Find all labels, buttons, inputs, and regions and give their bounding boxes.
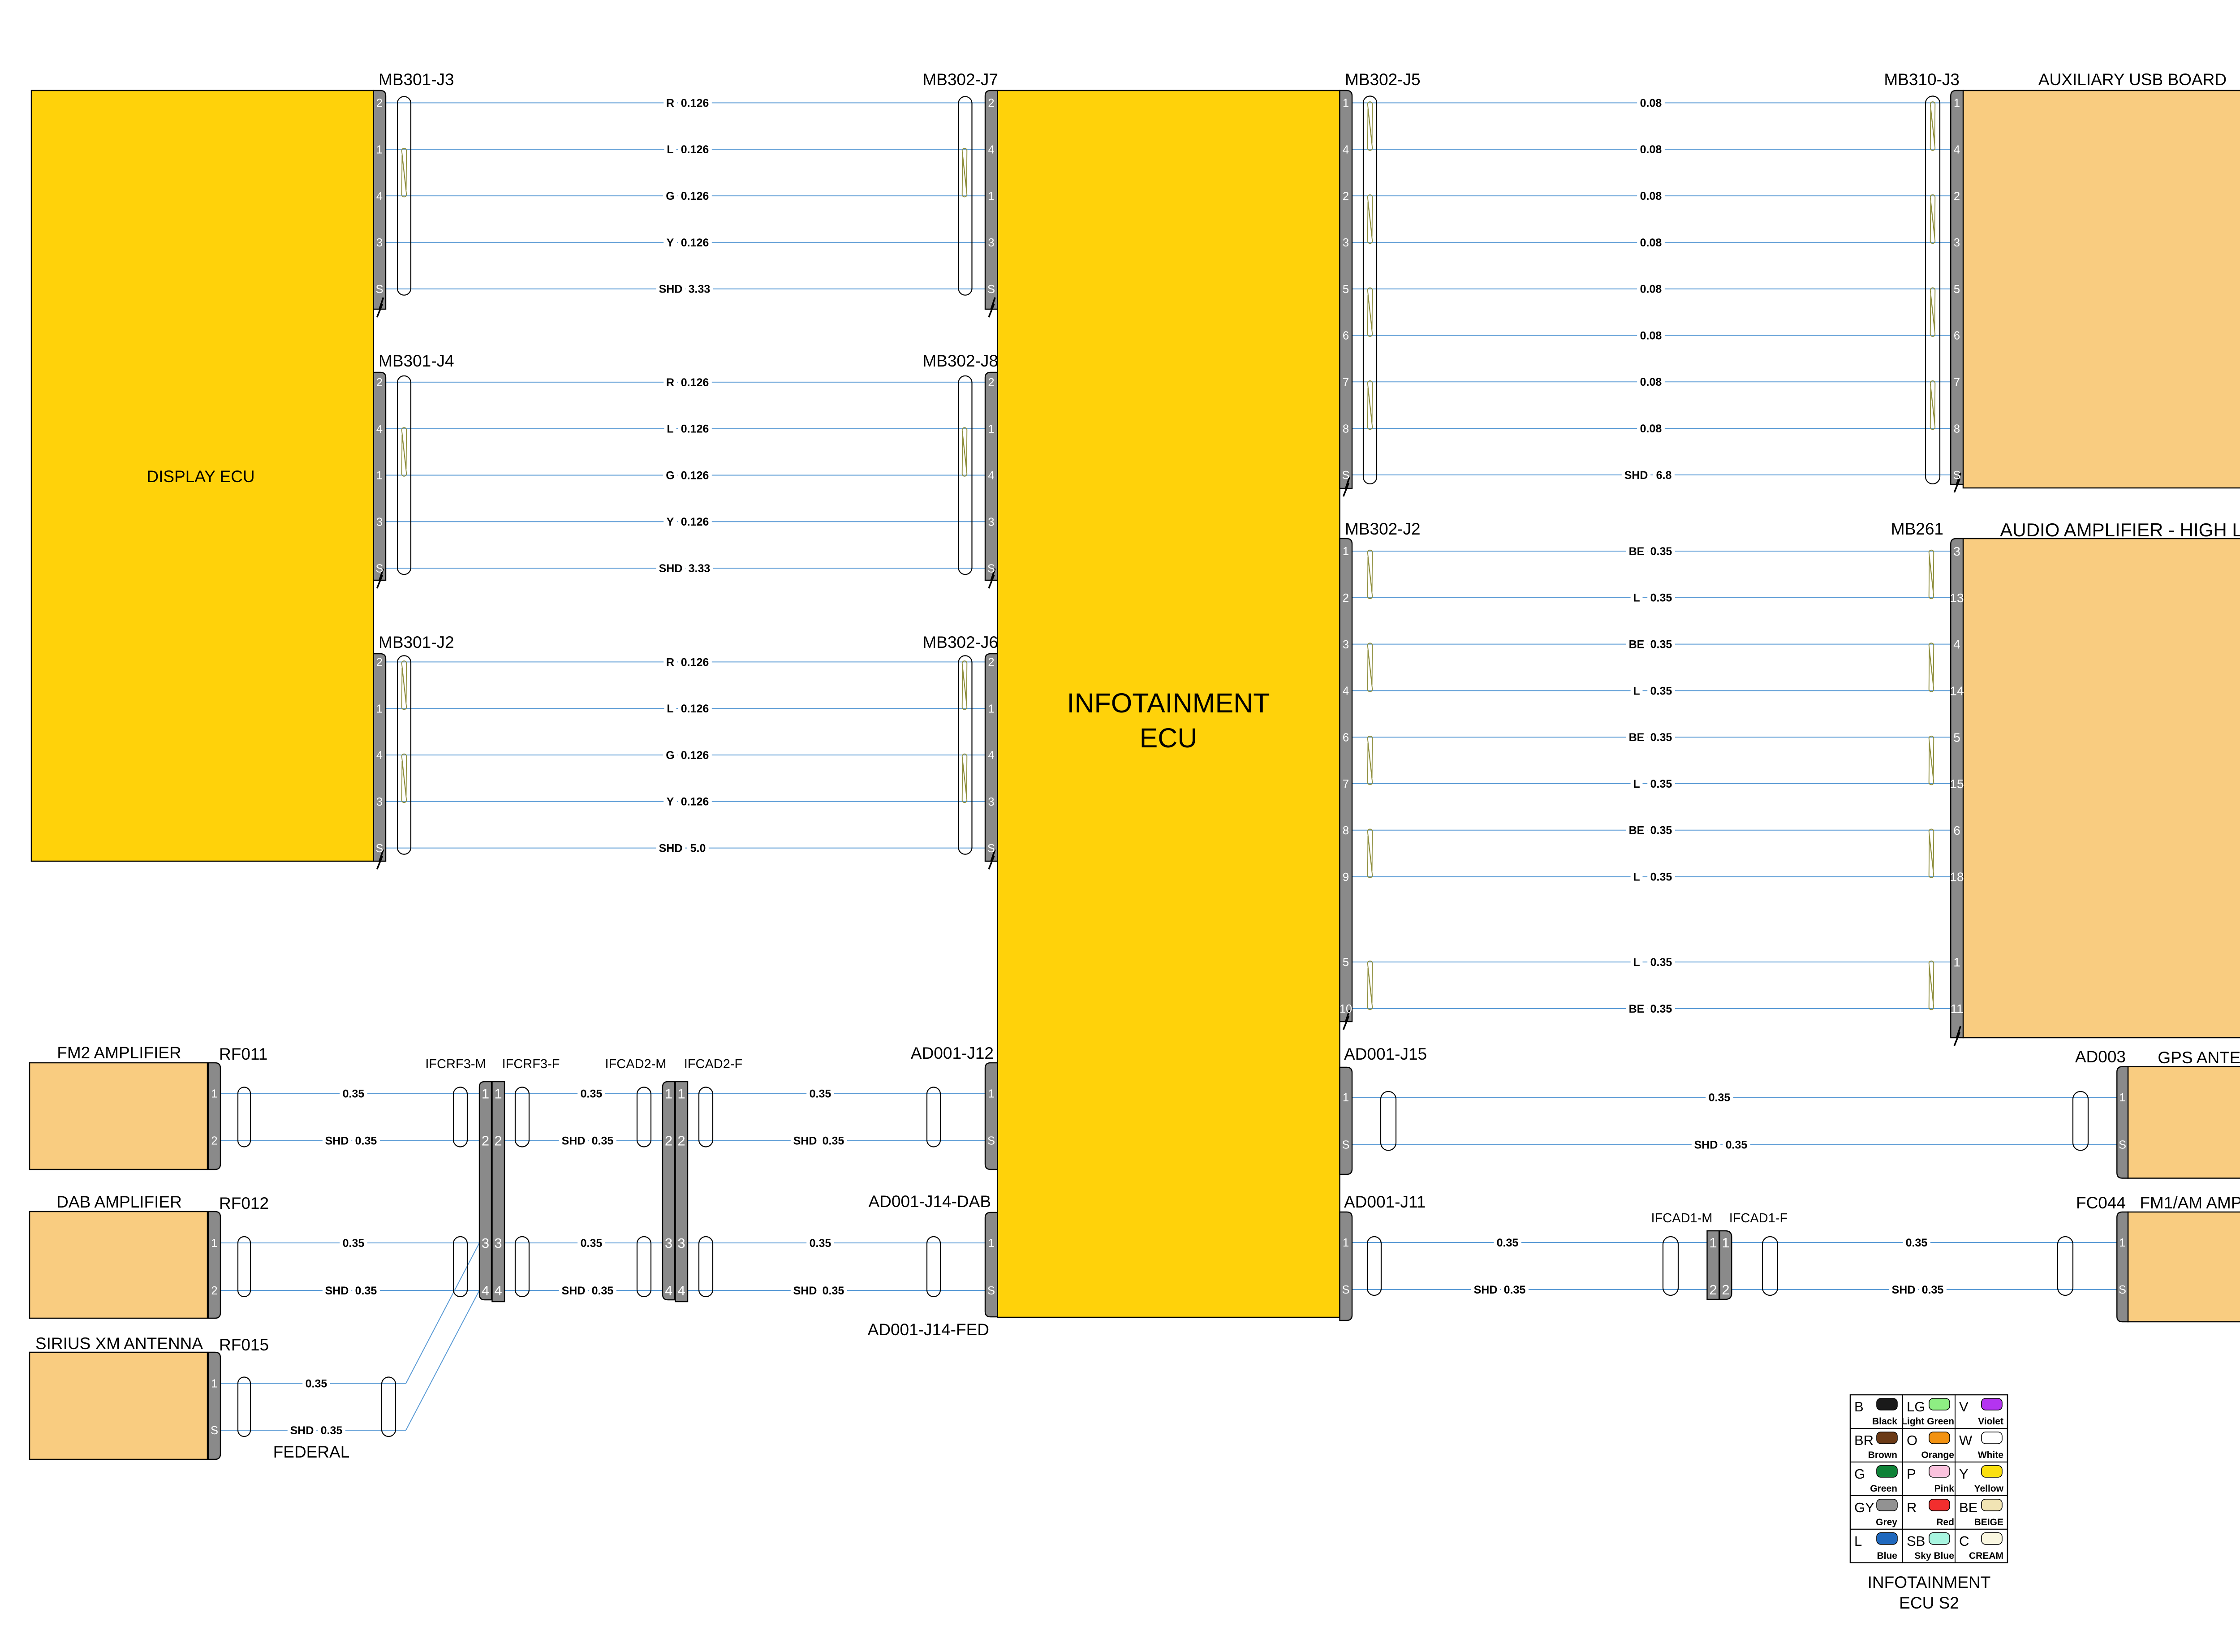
svg-text:10: 10 [1340, 1003, 1352, 1015]
svg-text:BE: BE [1629, 824, 1645, 837]
svg-text:L: L [667, 703, 673, 715]
svg-text:SIRIUS XM ANTENNA: SIRIUS XM ANTENNA [35, 1334, 203, 1353]
svg-text:0.35: 0.35 [1650, 731, 1672, 744]
svg-text:0.35: 0.35 [592, 1285, 614, 1297]
svg-text:SHD: SHD [659, 283, 683, 296]
svg-text:4: 4 [988, 144, 994, 156]
svg-text:S: S [1342, 1139, 1349, 1152]
svg-text:0.126: 0.126 [681, 796, 709, 808]
svg-text:1: 1 [1343, 1091, 1349, 1104]
svg-text:5: 5 [1953, 730, 1960, 744]
svg-text:0.35: 0.35 [581, 1237, 603, 1250]
svg-text:BR: BR [1854, 1432, 1874, 1448]
svg-text:0.35: 0.35 [823, 1285, 844, 1297]
svg-text:2: 2 [376, 97, 383, 110]
svg-text:SHD: SHD [1892, 1284, 1916, 1296]
svg-text:2: 2 [1722, 1282, 1729, 1298]
svg-text:0.35: 0.35 [343, 1087, 365, 1100]
svg-text:2: 2 [494, 1133, 502, 1149]
svg-text:0.126: 0.126 [681, 237, 709, 249]
svg-text:FEDERAL: FEDERAL [273, 1443, 350, 1461]
svg-text:SHD: SHD [1694, 1139, 1718, 1151]
svg-text:S: S [987, 842, 995, 855]
svg-text:Grey: Grey [1876, 1517, 1897, 1527]
svg-text:3: 3 [1953, 544, 1960, 558]
svg-text:GY: GY [1854, 1500, 1874, 1515]
svg-text:1: 1 [2119, 1091, 2125, 1104]
svg-text:W: W [1959, 1432, 1973, 1448]
svg-text:AD001-J11: AD001-J11 [1344, 1193, 1426, 1211]
svg-text:CREAM: CREAM [1969, 1551, 2003, 1561]
svg-text:0.08: 0.08 [1640, 376, 1662, 388]
svg-text:S: S [211, 1424, 218, 1437]
svg-text:Blue: Blue [1877, 1551, 1897, 1561]
svg-text:1: 1 [2119, 1237, 2125, 1249]
svg-text:0.08: 0.08 [1640, 237, 1662, 249]
svg-text:1: 1 [376, 703, 383, 715]
svg-text:0.35: 0.35 [1650, 1003, 1672, 1015]
svg-text:6: 6 [1343, 731, 1349, 744]
svg-text:Orange: Orange [1921, 1450, 1954, 1460]
svg-text:0.126: 0.126 [681, 190, 709, 203]
svg-text:5: 5 [1343, 283, 1349, 296]
svg-text:7: 7 [1343, 376, 1349, 389]
svg-text:3: 3 [1954, 237, 1960, 249]
svg-text:MB301-J2: MB301-J2 [379, 633, 454, 651]
svg-text:0.126: 0.126 [681, 516, 709, 528]
svg-text:0.35: 0.35 [1504, 1284, 1526, 1296]
svg-text:0.08: 0.08 [1640, 97, 1662, 109]
svg-text:SHD: SHD [659, 562, 683, 575]
svg-text:8: 8 [1343, 824, 1349, 837]
svg-text:MB302-J5: MB302-J5 [1345, 70, 1421, 89]
svg-text:S: S [1953, 469, 1960, 482]
svg-text:4: 4 [988, 749, 994, 762]
svg-text:0.35: 0.35 [1906, 1237, 1928, 1249]
svg-text:6: 6 [1953, 824, 1960, 837]
svg-text:0.35: 0.35 [1650, 638, 1672, 651]
svg-text:Violet: Violet [1978, 1416, 2003, 1427]
svg-text:0.35: 0.35 [823, 1134, 844, 1147]
svg-text:AD001-J14-DAB: AD001-J14-DAB [868, 1192, 991, 1211]
svg-text:O: O [1907, 1432, 1917, 1448]
svg-text:IFCAD2-M: IFCAD2-M [605, 1057, 667, 1071]
svg-text:4: 4 [1343, 144, 1349, 156]
svg-text:RF015: RF015 [219, 1336, 269, 1354]
svg-text:0.35: 0.35 [1922, 1284, 1944, 1296]
svg-text:3: 3 [1343, 237, 1349, 249]
svg-text:MB261: MB261 [1891, 520, 1943, 538]
svg-text:C: C [1959, 1533, 1969, 1549]
svg-text:2: 2 [665, 1133, 672, 1149]
svg-text:SHD: SHD [793, 1134, 817, 1147]
svg-text:0.126: 0.126 [681, 376, 709, 389]
svg-text:FM2 AMPLIFIER: FM2 AMPLIFIER [57, 1044, 181, 1062]
svg-text:BE: BE [1629, 731, 1645, 744]
svg-text:1: 1 [211, 1378, 217, 1390]
svg-text:Brown: Brown [1868, 1450, 1897, 1460]
svg-text:SHD: SHD [659, 842, 683, 855]
svg-text:0.35: 0.35 [355, 1285, 377, 1297]
svg-text:3: 3 [677, 1235, 685, 1251]
svg-text:0.35: 0.35 [810, 1087, 831, 1100]
svg-text:4: 4 [1343, 685, 1349, 698]
svg-text:0.126: 0.126 [681, 749, 709, 762]
svg-text:SHD: SHD [793, 1285, 817, 1297]
svg-text:1: 1 [1343, 1237, 1349, 1249]
svg-text:0.35: 0.35 [1650, 685, 1672, 697]
svg-text:13: 13 [1950, 591, 1964, 605]
svg-text:G: G [666, 469, 674, 482]
svg-text:MB302-J7: MB302-J7 [922, 70, 998, 89]
svg-text:IFCRF3-M: IFCRF3-M [425, 1057, 486, 1071]
svg-text:AUDIO AMPLIFIER - HIGH LINE: AUDIO AMPLIFIER - HIGH LINE [2000, 519, 2240, 540]
svg-text:9: 9 [1343, 871, 1349, 884]
svg-text:S: S [2119, 1139, 2126, 1152]
svg-text:3: 3 [482, 1235, 489, 1251]
svg-text:2: 2 [988, 656, 994, 669]
svg-text:AD001-J12: AD001-J12 [911, 1044, 994, 1062]
svg-text:0.126: 0.126 [681, 469, 709, 482]
svg-text:Red: Red [1936, 1517, 1954, 1527]
svg-text:SHD: SHD [325, 1285, 349, 1297]
svg-text:1: 1 [988, 1088, 994, 1100]
svg-text:2: 2 [1343, 190, 1349, 203]
svg-text:4: 4 [1953, 638, 1960, 651]
svg-text:2: 2 [211, 1135, 217, 1147]
svg-text:3: 3 [494, 1235, 502, 1251]
svg-text:2: 2 [211, 1285, 217, 1297]
svg-text:Y: Y [1959, 1466, 1969, 1482]
svg-text:S: S [987, 1285, 995, 1297]
svg-text:4: 4 [376, 190, 383, 203]
svg-text:1: 1 [1709, 1235, 1717, 1251]
svg-text:MB302-J6: MB302-J6 [922, 633, 998, 651]
svg-text:1: 1 [494, 1086, 502, 1102]
svg-text:11: 11 [1950, 1002, 1963, 1016]
svg-text:0.35: 0.35 [306, 1377, 327, 1390]
svg-text:6: 6 [1343, 330, 1349, 342]
svg-text:2: 2 [376, 656, 383, 669]
svg-text:L: L [667, 423, 673, 436]
svg-text:MB310-J3: MB310-J3 [1884, 70, 1960, 89]
svg-text:1: 1 [1343, 545, 1349, 558]
svg-text:0.08: 0.08 [1640, 283, 1662, 296]
svg-text:IFCAD1-F: IFCAD1-F [1729, 1211, 1788, 1225]
svg-text:BE: BE [1959, 1500, 1977, 1515]
svg-text:3: 3 [988, 516, 994, 529]
svg-text:0.08: 0.08 [1640, 190, 1662, 203]
svg-text:SHD: SHD [1624, 469, 1648, 482]
svg-text:ECU S2: ECU S2 [1899, 1594, 1959, 1612]
svg-text:2: 2 [376, 376, 383, 389]
svg-text:SHD: SHD [290, 1424, 314, 1437]
svg-text:SB: SB [1907, 1533, 1925, 1549]
svg-text:1: 1 [988, 190, 994, 203]
svg-text:1: 1 [665, 1086, 672, 1102]
svg-text:P: P [1907, 1466, 1916, 1482]
svg-text:R: R [666, 376, 674, 389]
svg-text:1: 1 [211, 1237, 217, 1250]
svg-text:B: B [1854, 1399, 1864, 1415]
svg-text:0.35: 0.35 [321, 1424, 343, 1437]
svg-text:S: S [987, 1135, 995, 1147]
svg-text:2: 2 [1343, 592, 1349, 604]
svg-text:BEIGE: BEIGE [1974, 1517, 2003, 1527]
svg-text:3.33: 3.33 [689, 283, 711, 296]
svg-text:3.33: 3.33 [689, 562, 711, 575]
svg-text:3: 3 [988, 796, 994, 808]
svg-text:INFOTAINMENT: INFOTAINMENT [1067, 688, 1270, 718]
svg-text:0.35: 0.35 [1650, 956, 1672, 969]
svg-text:3: 3 [376, 796, 383, 808]
svg-text:L: L [1633, 956, 1640, 969]
svg-text:4: 4 [988, 470, 994, 482]
svg-text:MB301-J3: MB301-J3 [379, 70, 454, 89]
svg-text:LG: LG [1907, 1399, 1925, 1415]
svg-text:Y: Y [667, 516, 674, 528]
svg-text:FC044: FC044 [2076, 1194, 2126, 1212]
svg-text:1: 1 [376, 470, 383, 482]
svg-text:0.35: 0.35 [343, 1237, 365, 1250]
svg-text:0.35: 0.35 [1709, 1091, 1731, 1104]
svg-text:3: 3 [665, 1235, 672, 1251]
svg-text:1: 1 [988, 423, 994, 436]
svg-text:3: 3 [376, 516, 383, 529]
svg-text:IFCAD1-M: IFCAD1-M [1651, 1211, 1713, 1225]
svg-text:3: 3 [376, 237, 383, 249]
svg-text:Y: Y [667, 796, 674, 808]
svg-text:V: V [1959, 1399, 1969, 1415]
svg-text:S: S [1342, 1284, 1349, 1296]
svg-text:2: 2 [988, 97, 994, 110]
svg-text:7: 7 [1343, 778, 1349, 790]
svg-text:MB301-J4: MB301-J4 [379, 352, 454, 370]
svg-text:4: 4 [376, 749, 383, 762]
svg-text:Green: Green [1870, 1484, 1897, 1494]
svg-text:0.126: 0.126 [681, 423, 709, 436]
svg-text:L: L [1854, 1533, 1862, 1549]
svg-text:FM1/AM AMPLIFIER: FM1/AM AMPLIFIER [2140, 1194, 2240, 1212]
svg-text:15: 15 [1950, 777, 1964, 791]
svg-text:White: White [1978, 1450, 2003, 1460]
svg-text:3: 3 [988, 237, 994, 249]
svg-text:0.126: 0.126 [681, 97, 709, 109]
svg-text:8: 8 [1954, 423, 1960, 435]
svg-text:5: 5 [1343, 956, 1349, 969]
svg-text:0.35: 0.35 [1650, 871, 1672, 884]
svg-text:0.35: 0.35 [1650, 545, 1672, 558]
svg-text:0.35: 0.35 [355, 1134, 377, 1147]
svg-text:R: R [666, 97, 674, 109]
svg-text:2: 2 [1954, 190, 1960, 203]
svg-text:0.126: 0.126 [681, 656, 709, 669]
svg-text:0.126: 0.126 [681, 143, 709, 156]
svg-text:2: 2 [677, 1133, 685, 1149]
svg-text:S: S [1342, 469, 1349, 482]
svg-text:1: 1 [482, 1086, 489, 1102]
svg-text:L: L [1633, 685, 1640, 697]
svg-text:S: S [2119, 1284, 2126, 1296]
svg-text:R: R [1907, 1500, 1917, 1515]
svg-text:1: 1 [1953, 955, 1960, 969]
svg-text:S: S [375, 562, 383, 575]
svg-text:2: 2 [988, 376, 994, 389]
svg-text:0.35: 0.35 [1726, 1139, 1748, 1151]
svg-text:4: 4 [665, 1283, 672, 1298]
svg-text:0.35: 0.35 [1650, 778, 1672, 790]
svg-text:L: L [1633, 871, 1640, 884]
svg-text:1: 1 [1954, 97, 1960, 110]
svg-text:AUXILIARY USB BOARD: AUXILIARY USB BOARD [2038, 70, 2227, 89]
svg-text:DISPLAY ECU: DISPLAY ECU [146, 467, 254, 486]
svg-text:AD001-J14-FED: AD001-J14-FED [868, 1320, 989, 1339]
svg-text:6.8: 6.8 [1656, 469, 1672, 482]
svg-text:4: 4 [1954, 144, 1960, 156]
svg-text:ECU: ECU [1140, 723, 1198, 753]
svg-text:INFOTAINMENT: INFOTAINMENT [1868, 1573, 1991, 1592]
svg-text:SHD: SHD [1474, 1284, 1498, 1296]
svg-text:5: 5 [1954, 283, 1960, 296]
svg-text:18: 18 [1950, 870, 1964, 884]
svg-text:Yellow: Yellow [1974, 1484, 2004, 1494]
svg-text:S: S [987, 283, 995, 296]
svg-text:6: 6 [1954, 330, 1960, 342]
svg-text:SHD: SHD [562, 1134, 586, 1147]
svg-text:MB302-J8: MB302-J8 [922, 352, 998, 370]
svg-text:L: L [1633, 778, 1640, 790]
svg-text:1: 1 [376, 144, 383, 156]
svg-text:SHD: SHD [325, 1134, 349, 1147]
svg-text:4: 4 [494, 1283, 502, 1298]
svg-text:1: 1 [988, 703, 994, 715]
svg-text:SHD: SHD [562, 1285, 586, 1297]
svg-text:L: L [1633, 592, 1640, 604]
svg-text:1: 1 [988, 1237, 994, 1250]
svg-text:Sky Blue: Sky Blue [1914, 1551, 1954, 1561]
svg-text:0.35: 0.35 [810, 1237, 831, 1250]
svg-text:8: 8 [1343, 423, 1349, 435]
svg-text:0.35: 0.35 [1650, 824, 1672, 837]
svg-text:0.08: 0.08 [1640, 143, 1662, 156]
svg-text:1: 1 [1343, 97, 1349, 110]
svg-text:IFCRF3-F: IFCRF3-F [502, 1057, 560, 1071]
svg-text:Pink: Pink [1934, 1484, 1955, 1494]
svg-text:S: S [375, 283, 383, 296]
svg-text:G: G [666, 190, 674, 203]
svg-text:0.08: 0.08 [1640, 423, 1662, 435]
svg-text:0.35: 0.35 [592, 1134, 614, 1147]
svg-text:Light Green: Light Green [1901, 1416, 1954, 1427]
svg-text:RF012: RF012 [219, 1194, 269, 1212]
svg-text:GPS ANTENNA: GPS ANTENNA [2158, 1048, 2240, 1067]
svg-text:4: 4 [482, 1283, 489, 1298]
svg-text:3: 3 [1343, 638, 1349, 651]
svg-text:AD001-J15: AD001-J15 [1344, 1045, 1427, 1063]
svg-text:Y: Y [667, 237, 674, 249]
svg-text:1: 1 [1722, 1235, 1729, 1251]
svg-text:Black: Black [1872, 1416, 1897, 1427]
svg-text:2: 2 [482, 1133, 489, 1149]
svg-text:5.0: 5.0 [690, 842, 706, 855]
svg-text:4: 4 [677, 1283, 685, 1298]
svg-text:4: 4 [376, 423, 383, 436]
svg-text:L: L [667, 143, 673, 156]
svg-text:2: 2 [1709, 1282, 1717, 1298]
svg-text:G: G [1854, 1466, 1865, 1482]
svg-text:0.35: 0.35 [581, 1087, 603, 1100]
svg-text:14: 14 [1950, 684, 1964, 698]
svg-text:R: R [666, 656, 674, 669]
svg-text:1: 1 [211, 1088, 217, 1100]
svg-text:7: 7 [1954, 376, 1960, 389]
svg-text:G: G [666, 749, 674, 762]
svg-text:S: S [375, 842, 383, 855]
svg-text:0.08: 0.08 [1640, 329, 1662, 342]
svg-text:0.35: 0.35 [1497, 1237, 1519, 1249]
svg-text:0.35: 0.35 [1650, 592, 1672, 604]
svg-text:1: 1 [677, 1086, 685, 1102]
svg-text:BE: BE [1629, 1003, 1645, 1015]
svg-text:BE: BE [1629, 638, 1645, 651]
svg-text:DAB AMPLIFIER: DAB AMPLIFIER [56, 1193, 182, 1211]
svg-text:MB302-J2: MB302-J2 [1345, 520, 1421, 538]
svg-text:0.126: 0.126 [681, 703, 709, 715]
svg-text:BE: BE [1629, 545, 1645, 558]
svg-text:IFCAD2-F: IFCAD2-F [684, 1057, 743, 1071]
svg-text:AD003: AD003 [2075, 1048, 2126, 1066]
svg-text:S: S [987, 562, 995, 575]
svg-text:RF011: RF011 [219, 1045, 267, 1063]
